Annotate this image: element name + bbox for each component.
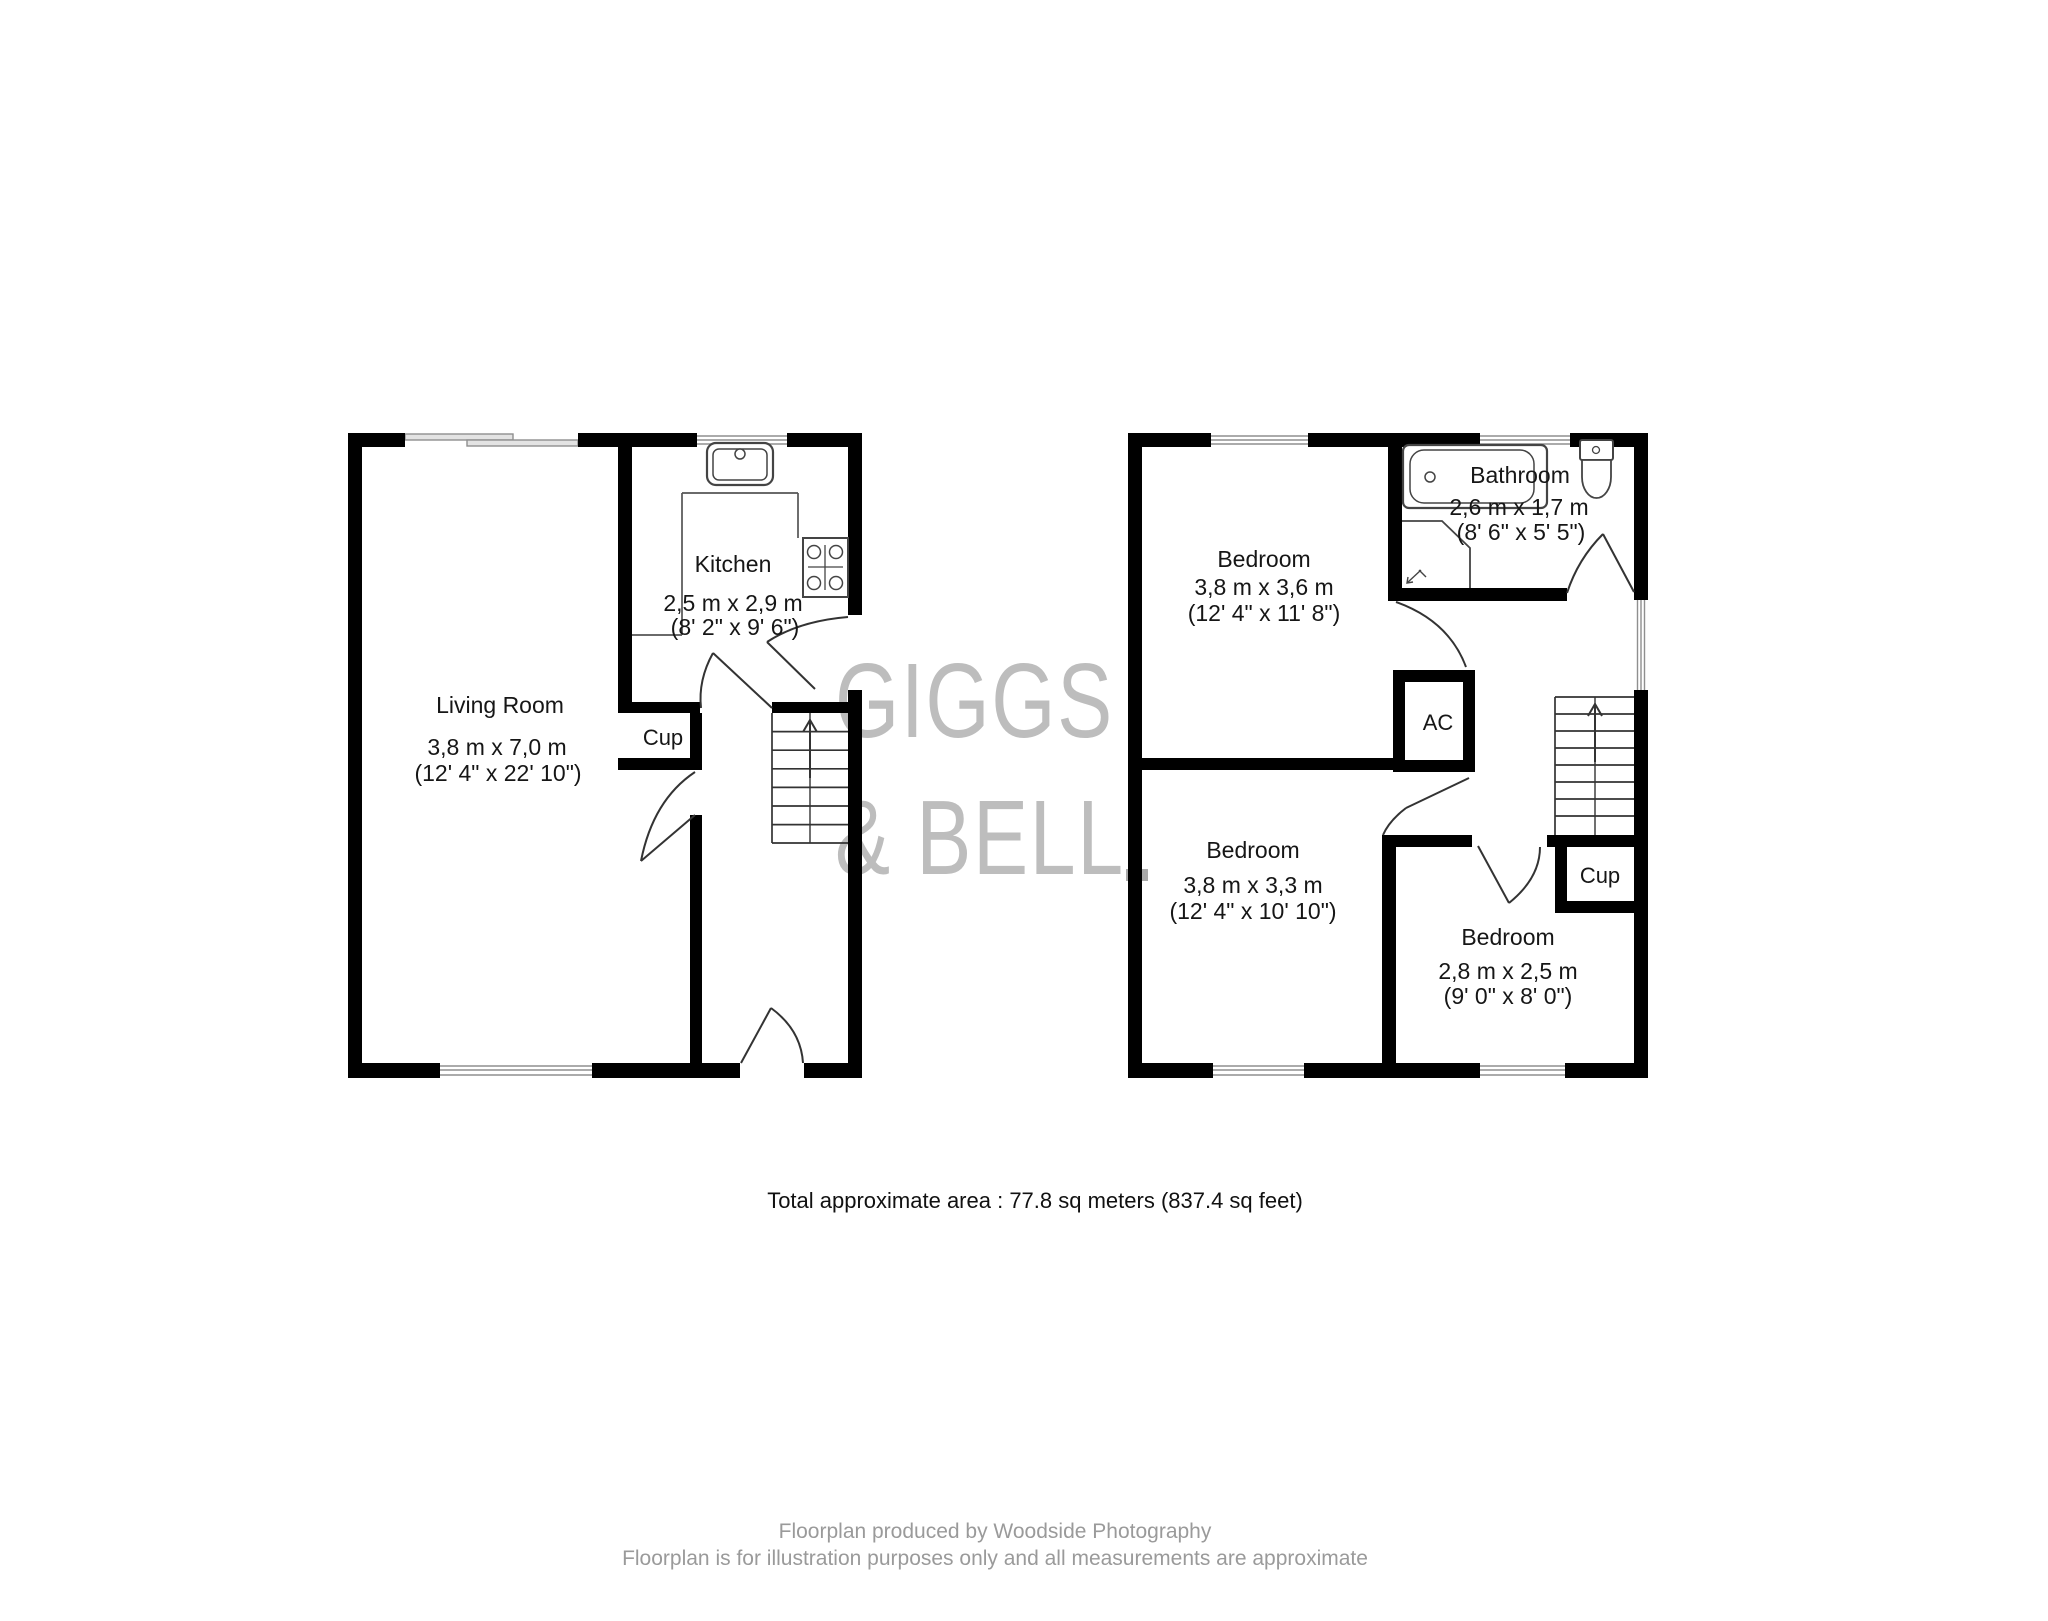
wall-segment bbox=[348, 433, 362, 1078]
footer: Floorplan produced by Woodside Photograp… bbox=[622, 1518, 1368, 1572]
window-bedroom2-bottom bbox=[1213, 1063, 1304, 1078]
wall-segment bbox=[618, 447, 632, 713]
wall-segment bbox=[1388, 447, 1402, 601]
total-area-text: Total approximate area : 77.8 sq meters … bbox=[767, 1188, 1303, 1214]
wall-segment bbox=[1565, 1063, 1648, 1078]
floorplan-page: GIGGS & BELL bbox=[0, 0, 2048, 1621]
first-floor-plan: Bedroom 3,8 m x 3,6 m (12' 4" x 11' 8") … bbox=[1126, 433, 1648, 1078]
footer-credit: Floorplan produced by Woodside Photograp… bbox=[622, 1518, 1368, 1545]
floorplan-drawing: Living Room 3,8 m x 7,0 m (12' 4" x 22' … bbox=[0, 0, 2048, 1621]
front-door bbox=[741, 1008, 803, 1063]
footer-disclaimer: Floorplan is for illustration purposes o… bbox=[622, 1545, 1368, 1572]
wall-segment bbox=[1128, 1063, 1213, 1078]
room-dim-imperial: (12' 4" x 10' 10") bbox=[1169, 898, 1336, 924]
stairs-icon bbox=[1555, 697, 1634, 835]
sink-icon bbox=[707, 443, 773, 485]
wall-segment bbox=[772, 702, 848, 713]
stairs-up-arrow bbox=[1588, 704, 1602, 762]
window-bedroom1-top bbox=[1211, 433, 1308, 447]
doors bbox=[641, 617, 848, 1063]
room-kitchen: Kitchen 2,5 m x 2,9 m (8' 2" x 9' 6") bbox=[663, 551, 802, 640]
kitchen-door bbox=[701, 653, 773, 708]
room-living-room: Living Room 3,8 m x 7,0 m (12' 4" x 22' … bbox=[414, 692, 581, 786]
room-dim-imperial: (12' 4" x 11' 8") bbox=[1188, 600, 1341, 626]
room-dim-metric: 3,8 m x 7,0 m bbox=[427, 734, 566, 760]
room-label: Bedroom bbox=[1206, 837, 1299, 863]
wall-segment bbox=[592, 1063, 740, 1078]
wall-segment bbox=[618, 758, 702, 770]
hob-icon bbox=[803, 538, 848, 597]
room-dim-imperial: (8' 6" x 5' 5") bbox=[1457, 519, 1586, 545]
room-dim-metric: 2,8 m x 2,5 m bbox=[1438, 958, 1577, 984]
room-ac-label: AC bbox=[1423, 710, 1454, 735]
bedroom2-door bbox=[1383, 778, 1469, 835]
ground-floor-plan: Living Room 3,8 m x 7,0 m (12' 4" x 22' … bbox=[348, 433, 862, 1078]
wall-segment bbox=[1634, 690, 1648, 1078]
wall-segment bbox=[1382, 835, 1396, 1063]
room-label: Bathroom bbox=[1470, 462, 1570, 488]
walls bbox=[348, 433, 862, 1078]
room-bedroom-1: Bedroom 3,8 m x 3,6 m (12' 4" x 11' 8") bbox=[1188, 546, 1341, 626]
wall-segment bbox=[578, 433, 697, 447]
wall-segment bbox=[690, 815, 702, 1063]
room-dim-metric: 3,8 m x 3,6 m bbox=[1194, 574, 1333, 600]
wall-segment bbox=[848, 690, 862, 1078]
wall-segment bbox=[1555, 901, 1634, 913]
window-bedroom3-bottom bbox=[1480, 1063, 1565, 1078]
window-sliding-top bbox=[405, 434, 513, 440]
wall-segment bbox=[1393, 760, 1475, 772]
room-dim-metric: 3,8 m x 3,3 m bbox=[1183, 872, 1322, 898]
room-label: Bedroom bbox=[1217, 546, 1310, 572]
wall-segment bbox=[348, 1063, 440, 1078]
room-label: Bedroom bbox=[1461, 924, 1554, 950]
room-cupboard-label: Cup bbox=[643, 725, 683, 750]
bedroom3-door bbox=[1478, 846, 1540, 903]
wall-segment bbox=[1142, 758, 1393, 770]
wall-segment bbox=[1388, 588, 1567, 601]
shower-head-icon bbox=[1407, 570, 1426, 583]
room-dim-metric: 2,5 m x 2,9 m bbox=[663, 590, 802, 616]
stairs-icon bbox=[772, 713, 848, 843]
wall-segment bbox=[618, 702, 700, 713]
room-bedroom-2: Bedroom 3,8 m x 3,3 m (12' 4" x 10' 10") bbox=[1169, 837, 1336, 924]
bedroom1-door bbox=[1396, 602, 1466, 667]
living-room-door bbox=[641, 772, 695, 861]
wall-segment bbox=[848, 433, 862, 615]
wall-segment bbox=[1393, 670, 1405, 772]
wall-segment bbox=[1634, 433, 1648, 600]
room-dim-metric: 2,6 m x 1,7 m bbox=[1449, 494, 1588, 520]
wall-segment bbox=[1128, 433, 1142, 1078]
window-stairwell-right bbox=[1634, 600, 1648, 690]
room-bathroom: Bathroom 2,6 m x 1,7 m (8' 6" x 5' 5") bbox=[1449, 462, 1588, 545]
room-cupboard-label: Cup bbox=[1580, 863, 1620, 888]
room-label: Living Room bbox=[436, 692, 564, 718]
room-bedroom-3: Bedroom 2,8 m x 2,5 m (9' 0" x 8' 0") bbox=[1438, 924, 1577, 1009]
wall-segment bbox=[1463, 670, 1475, 772]
room-dim-imperial: (8' 2" x 9' 6") bbox=[671, 614, 800, 640]
wall-segment bbox=[1547, 835, 1635, 847]
wall-segment bbox=[690, 713, 702, 758]
toilet-icon bbox=[1580, 440, 1613, 498]
room-dim-imperial: (12' 4" x 22' 10") bbox=[414, 760, 581, 786]
window-sliding-top bbox=[467, 440, 578, 446]
window-living-bottom bbox=[440, 1063, 592, 1078]
wall-segment bbox=[1304, 1063, 1480, 1078]
room-label: Kitchen bbox=[695, 551, 772, 577]
room-dim-imperial: (9' 0" x 8' 0") bbox=[1444, 983, 1573, 1009]
wall-segment bbox=[1393, 670, 1475, 682]
